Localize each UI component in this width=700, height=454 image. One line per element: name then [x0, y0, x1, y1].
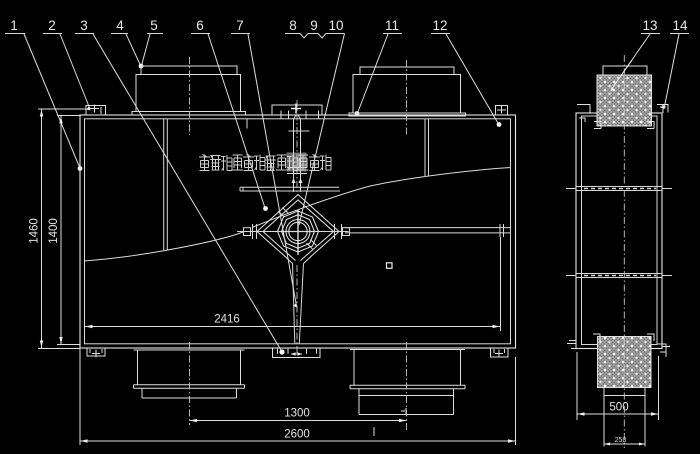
svg-text:7: 7	[236, 18, 244, 33]
svg-text:9: 9	[310, 18, 318, 33]
svg-text:1: 1	[10, 18, 18, 33]
svg-text:2600: 2600	[284, 429, 310, 441]
svg-text:10: 10	[328, 18, 343, 33]
svg-text:6: 6	[196, 18, 204, 33]
svg-text:11: 11	[385, 18, 399, 33]
svg-text:5: 5	[150, 18, 158, 33]
svg-text:1400: 1400	[48, 218, 60, 244]
svg-text:1300: 1300	[284, 408, 310, 420]
svg-text:8: 8	[289, 18, 297, 33]
svg-text:4: 4	[116, 18, 124, 33]
svg-text:2416: 2416	[214, 314, 240, 326]
svg-text:12: 12	[432, 18, 447, 33]
svg-text:1460: 1460	[29, 218, 41, 244]
svg-text:13: 13	[642, 18, 657, 33]
svg-text:3: 3	[80, 18, 88, 33]
svg-text:500: 500	[609, 402, 628, 414]
svg-text:14: 14	[672, 18, 688, 33]
svg-text:250: 250	[615, 437, 627, 444]
svg-text:2: 2	[48, 18, 56, 33]
